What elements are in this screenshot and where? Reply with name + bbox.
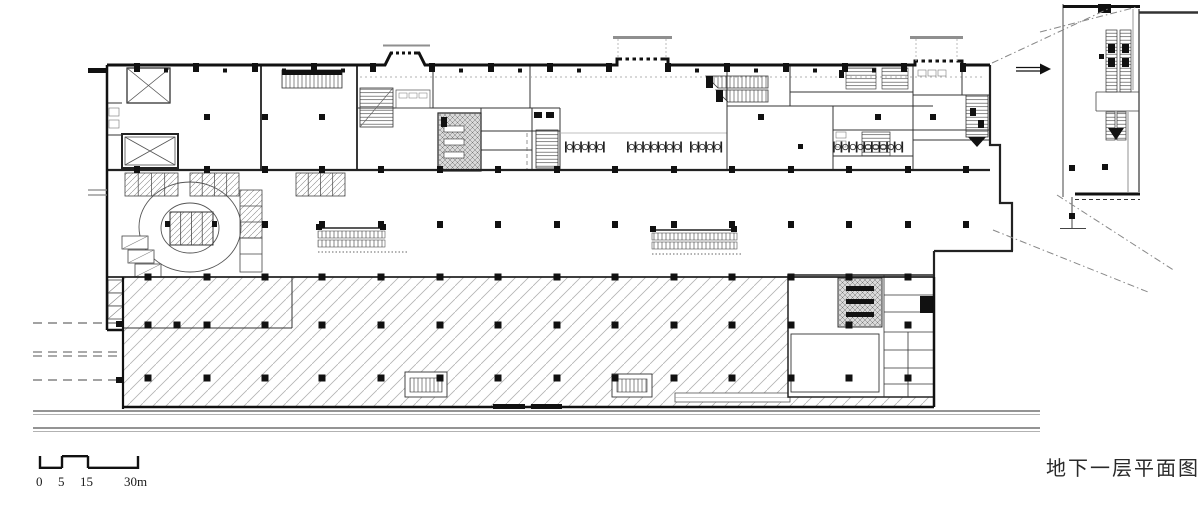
- garage-ramp-strip: [675, 393, 790, 402]
- stair-run: [836, 132, 890, 156]
- canopy-lines: [383, 38, 963, 62]
- stair-run: [282, 70, 342, 88]
- parking-stall-row: [190, 173, 239, 196]
- dashed-projection-lines: [992, 7, 1175, 292]
- parking-stall-column: [240, 190, 262, 272]
- vehicle-ramp-area: [122, 173, 345, 277]
- scale-label: 0: [36, 474, 43, 489]
- wing-escalators-upper: [1106, 30, 1131, 92]
- garage-room-cluster: [788, 275, 934, 397]
- wing-escalators-lower: [1106, 112, 1126, 140]
- parking-stalls-left: [122, 236, 161, 277]
- ramp-island-stalls: [165, 212, 217, 245]
- parking-stall-row: [296, 173, 345, 196]
- escalator-bank-concourse: [650, 226, 742, 254]
- west-wall-stub: [88, 68, 107, 73]
- escalator-bank-right: [966, 95, 988, 147]
- scale-label: 15: [80, 474, 93, 489]
- stair-run: [360, 88, 393, 127]
- escalator-bank-concourse: [316, 224, 408, 252]
- floor-plan-drawing: 0 5 15 30m: [0, 0, 1200, 507]
- stair-run: [534, 112, 558, 168]
- scale-bar: 0 5 15 30m: [36, 456, 147, 489]
- scale-label: 5: [58, 474, 65, 489]
- gray-service-core: [438, 113, 481, 171]
- plan-title: 地下一层平面图: [1046, 452, 1200, 481]
- fixture-stall-rows: [565, 142, 903, 153]
- scale-label: 30m: [124, 474, 147, 489]
- floor-plan-sheet: 0 5 15 30m 地下一层平面图: [0, 0, 1200, 507]
- right-wing: [1060, 4, 1198, 229]
- garage-side-stalls: [108, 280, 123, 319]
- parking-garage-hatch-area: [108, 275, 934, 408]
- parking-stall-row: [125, 173, 178, 196]
- escalator-bank-top: [706, 76, 768, 102]
- left-core-rooms: [107, 65, 342, 170]
- elevator-shaft: [920, 296, 933, 313]
- entrance-arrow: [1016, 64, 1051, 75]
